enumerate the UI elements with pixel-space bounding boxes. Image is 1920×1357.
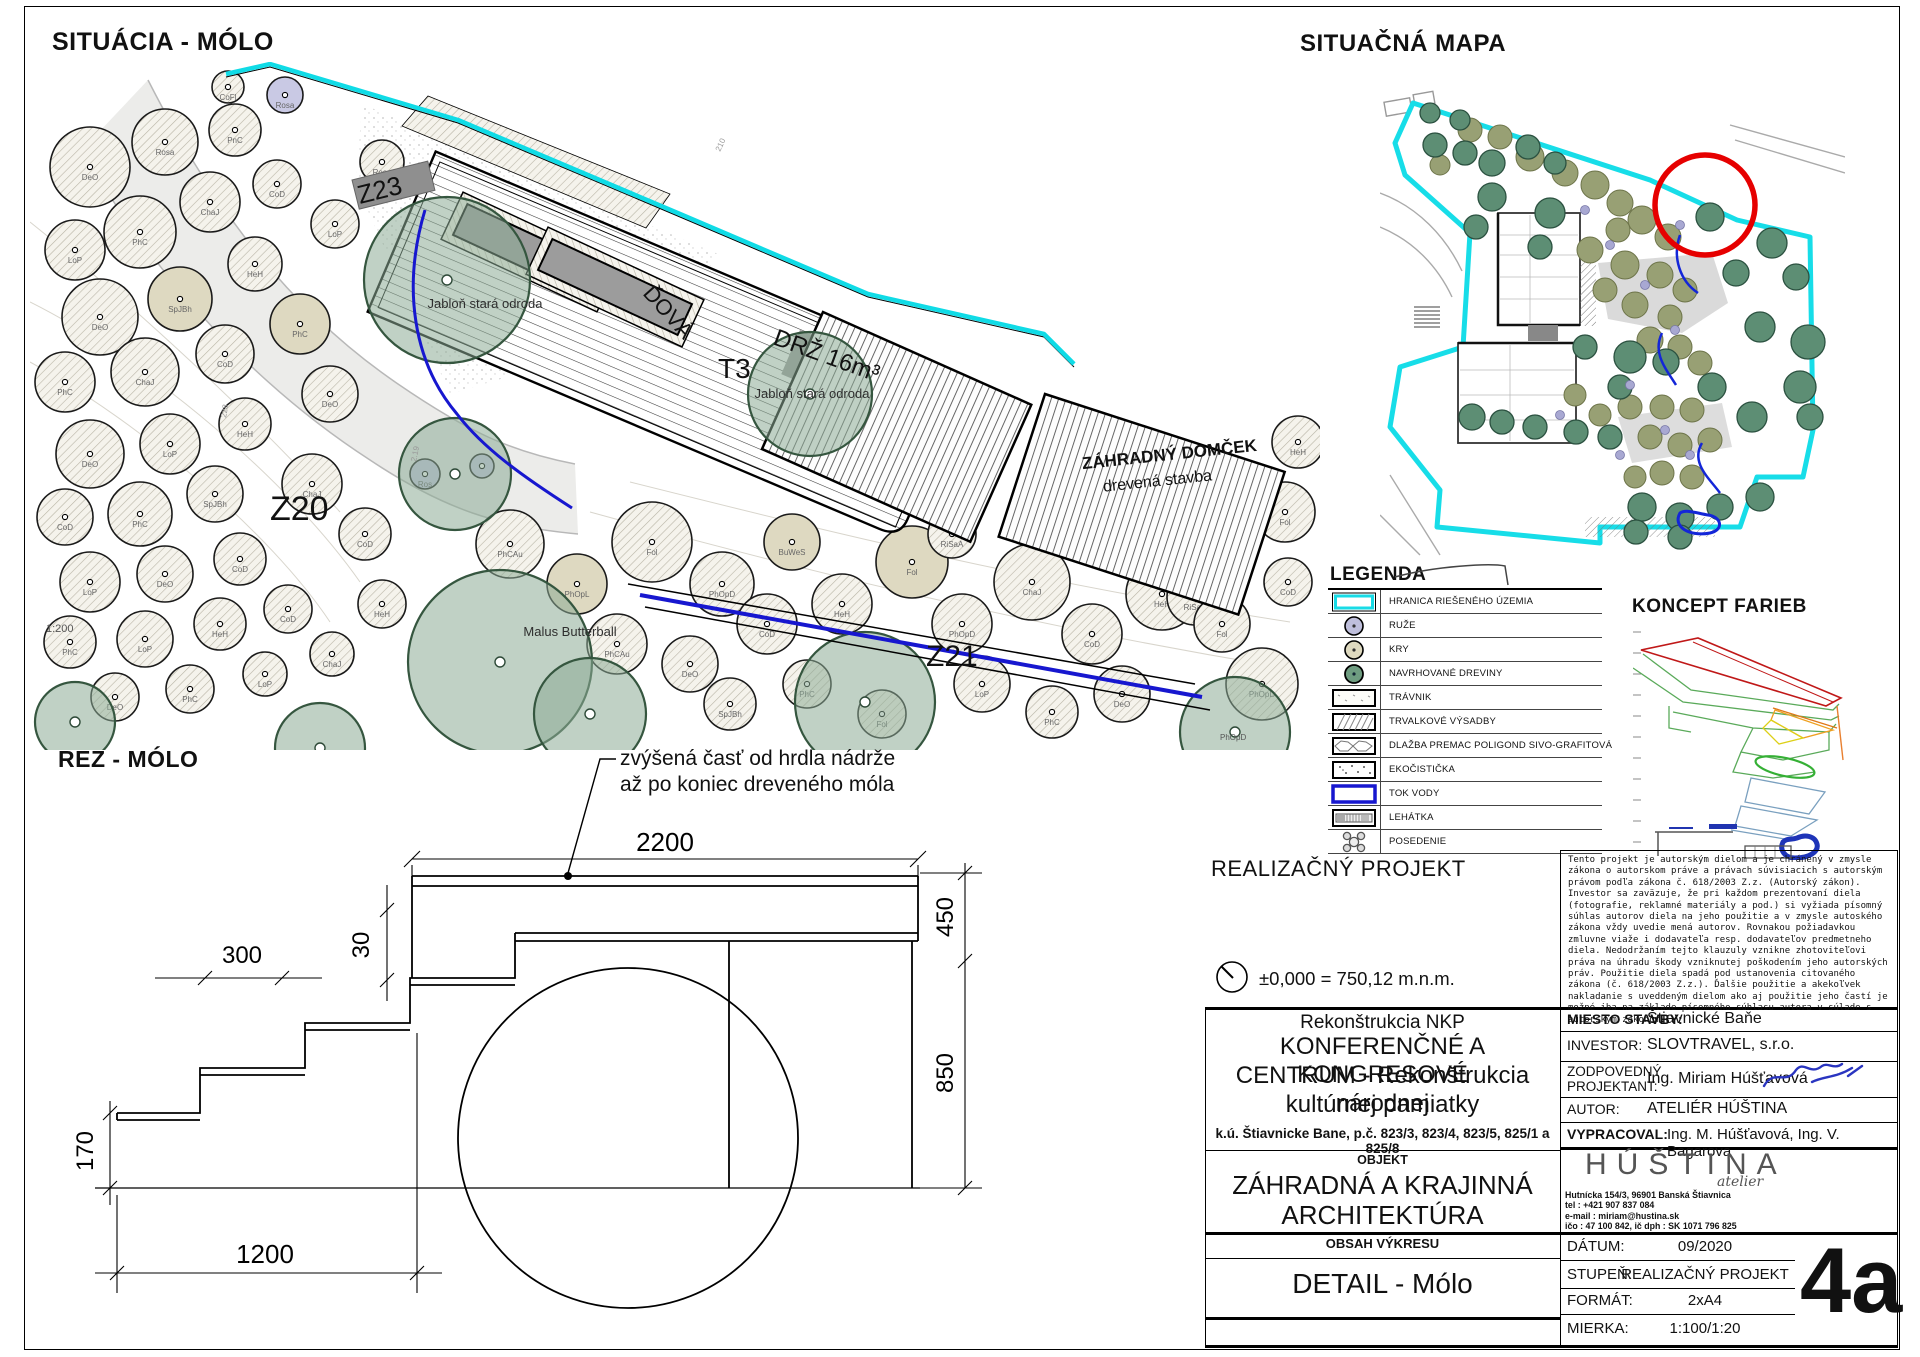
situation-map [1380,85,1845,563]
boundary-swatch [1328,590,1381,613]
map-tree [1598,425,1622,449]
meta-value-stupen: REALIZAČNÝ PROJEKT [1620,1266,1790,1283]
plan-tree: DeO [56,420,124,488]
plan-tree: PhC [1026,686,1078,738]
svg-text:PhOpD: PhOpD [709,590,735,599]
svg-text:PhC: PhC [292,330,308,339]
map-tree [1490,410,1514,434]
map-rose-dot [1641,281,1650,290]
plan-tree: LoP [117,611,173,667]
meta-value-datum: 09/2020 [1620,1238,1790,1255]
map-tree [1784,371,1816,403]
map-tree [1746,483,1774,511]
svg-text:PhC: PhC [132,520,148,529]
meta-value-mierka: 1:100/1:20 [1620,1320,1790,1337]
svg-text:LoP: LoP [83,588,97,597]
map-rose-dot [1686,451,1695,460]
map-rose-dot [1671,326,1680,335]
map-tree [1479,150,1505,176]
plan-tree: CoD [737,594,797,654]
map-tree [1668,525,1692,549]
meta-value-format: 2xA4 [1620,1292,1790,1309]
map-shrub [1680,398,1704,422]
annotation-leader [568,759,616,873]
plan-tree: DeO [302,366,358,422]
plan-tree: CoD [214,533,266,585]
svg-text:Fol: Fol [906,568,917,577]
map-shrub [1611,251,1639,279]
objekt-header: OBJEKT [1205,1153,1560,1167]
map-shrub [1622,292,1648,318]
logo-atelier: atelier [1717,1174,1763,1190]
title-koncept: KONCEPT FARIEB [1632,596,1807,618]
map-tree [1737,402,1767,432]
svg-text:300: 300 [222,942,262,969]
svg-text:PhC: PhC [1044,718,1060,727]
map-shrub [1606,218,1630,242]
site-plan-drawing: DeORosaPnCPhCLoPChaJCoDDeOSpJBhHeHPhCCha… [30,62,1320,750]
svg-text:CoD: CoD [280,615,296,624]
map-tree [1523,415,1547,439]
plan-tree: CoD [196,325,254,383]
svg-text:SpJBh: SpJBh [718,710,742,719]
plan-tree: ChaJ [180,172,240,232]
map-tree [1453,141,1477,165]
map-tree [1544,152,1566,174]
plan-tree: CoD [1062,604,1122,664]
plan-tree: SpJBh [704,678,756,730]
project-name-1: Rekonštrukcia NKP [1205,1012,1560,1034]
legend: HRANICA RIEŠENÉHO ÚZEMIARUŽEKRYNAVRHOVAN… [1328,588,1602,854]
obsah-header: OBSAH VÝKRESU [1205,1236,1560,1251]
svg-text:Rosa: Rosa [276,101,295,110]
legend-row: TRVALKOVÉ VÝSADBY [1328,710,1602,734]
map-rose-dot [1606,241,1615,250]
svg-text:CoD: CoD [232,565,248,574]
map-shrub [1650,461,1674,485]
plan-tree: CoD [37,489,93,545]
map-tree [1516,135,1540,159]
svg-text:30: 30 [348,932,375,959]
plan-tree: PhC [104,196,176,268]
perennial-swatch [1328,710,1381,733]
plan-tree: Rosa [267,77,303,113]
svg-text:HeH: HeH [212,630,228,639]
row-value-autor: ATELIÉR HÚŠTINA [1647,1100,1787,1118]
map-shrub [1688,351,1712,375]
map-tree [1573,335,1597,359]
map-rose-dot [1556,411,1565,420]
section-dim-labels: 2200 450 850 300 30 170 1200 [72,827,959,1269]
plan-tree: DeO [50,127,130,207]
map-tree [1696,203,1724,231]
svg-text:LoP: LoP [975,690,989,699]
svg-text:Fol: Fol [1279,518,1290,527]
logo-address: Hutnícka 154/3, 96901 Banská Štiavnica t… [1565,1190,1737,1231]
plan-tree: Fol [612,502,692,582]
map-shrub [1430,155,1450,175]
map-tree [1614,341,1646,373]
plan-tree: PhC [166,665,214,713]
plan-tree: PhC [270,294,330,354]
svg-text:LoP: LoP [138,645,152,654]
svg-text:HeH: HeH [237,430,253,439]
svg-text:HeH: HeH [1290,448,1306,457]
svg-text:170: 170 [72,1131,99,1171]
plan-tree: CoD [253,160,301,208]
section-annotation-1: zvýšená časť od hrdla nádrže [620,747,895,770]
legend-row: TOK VODY [1328,782,1602,806]
svg-text:CoD: CoD [57,523,73,532]
row-label-investor: INVESTOR: [1567,1037,1642,1053]
svg-text:CoD: CoD [759,630,775,639]
plan-tree: PhC [108,482,172,546]
svg-text:PhOpD: PhOpD [949,630,975,639]
plan-tree: HeH [358,580,406,628]
legend-row: DLAŽBA PREMAC POLIGOND SIVO-GRAFITOVÁ [1328,734,1602,758]
legend-label: RUŽE [1381,620,1416,631]
title-situacia: SITUÁCIA - MÓLO [52,28,274,57]
row-value-investor: SLOVTRAVEL, s.r.o. [1647,1036,1794,1054]
plan-label: Z20 [270,490,329,528]
svg-text:BuWeS: BuWeS [779,548,806,557]
plan-label: Z21 [926,640,978,673]
legend-row: LEHÁTKA [1328,806,1602,830]
svg-text:Fol: Fol [646,548,657,557]
copyright-text: Tento projekt je autorským dielom a je c… [1561,851,1898,1007]
svg-text:RiSaA: RiSaA [941,540,964,549]
tank-circle [458,968,798,1308]
svg-text:PhC: PhC [132,238,148,247]
lounger-swatch [1328,806,1381,829]
svg-text:CoD: CoD [357,540,373,549]
svg-text:LoP: LoP [68,256,82,265]
map-shrub [1647,262,1673,288]
plan-tree: Rosa [132,109,198,175]
svg-text:DeO: DeO [92,323,108,332]
map-shrub [1628,206,1656,234]
svg-text:DeO: DeO [82,460,98,469]
map-shrub [1624,466,1646,488]
svg-text:PhC: PhC [57,388,73,397]
plan-tree: SpJBh [187,466,243,522]
svg-text:PhC: PhC [182,695,198,704]
project-name-4: kultúrnej pamiatky [1205,1091,1560,1119]
svg-text:HeH: HeH [247,270,263,279]
map-tree [1797,404,1823,430]
legend-label: NAVRHOVANÉ DREVINY [1381,668,1503,679]
svg-text:DeO: DeO [322,400,338,409]
plan-tree: LoP [243,652,287,696]
svg-text:DeO: DeO [82,173,98,182]
signature [1760,1060,1875,1096]
map-tree [1464,215,1488,239]
plan-tree: HeH [1272,416,1320,468]
plan-tree: DeO [137,546,193,602]
svg-text:450: 450 [932,897,959,937]
svg-text:LoP: LoP [258,680,272,689]
legend-label: LEHÁTKA [1381,812,1434,823]
row-label-autor: AUTOR: [1567,1101,1620,1117]
svg-text:PhC: PhC [62,648,78,657]
map-tree [1564,420,1588,444]
map-rose-dot [1616,451,1625,460]
map-shrub [1607,190,1633,216]
plan-tree: DeO [662,636,718,692]
plan-tree: ChaJ [310,632,354,676]
koncept-farieb-sketch [1633,620,1903,860]
svg-text:PhCAu: PhCAu [604,650,629,659]
plan-tree: LoP [45,220,105,280]
map-tree [1624,520,1648,544]
stage-title: REALIZAČNÝ PROJEKT [1211,856,1466,882]
plan-tree: LoP [311,200,359,248]
plan-label: PhOpD [1220,733,1246,742]
svg-text:CoFl: CoFl [220,93,237,102]
svg-text:HeH: HeH [374,610,390,619]
map-shrub [1658,305,1682,329]
sketch-ticks [1633,632,1641,842]
svg-text:ChaJ: ChaJ [136,378,155,387]
legend-label: TOK VODY [1381,788,1440,799]
svg-text:850: 850 [932,1053,959,1093]
map-shrub [1638,425,1662,449]
plan-tree: PhC [35,352,95,412]
rose-swatch [1328,614,1381,637]
svg-text:2200: 2200 [636,827,694,857]
parcel-info: k.ú. Štiavnicke Bane, p.č. 823/3, 823/4,… [1205,1126,1560,1156]
shrub-swatch [1328,638,1381,661]
plan-tree: ChaJ [111,338,179,406]
legend-label: DLAŽBA PREMAC POLIGOND SIVO-GRAFITOVÁ [1381,740,1612,751]
objekt-line-1: ZÁHRADNÁ A KRAJINNÁ [1205,1170,1560,1201]
legend-label: KRY [1381,644,1409,655]
svg-text:CoD: CoD [217,360,233,369]
title-rez: REZ - MÓLO [58,746,198,773]
map-tree [1791,325,1825,359]
svg-text:1200: 1200 [236,1239,294,1269]
map-shrub [1680,465,1704,489]
tree-swatch [1328,662,1381,685]
map-tree [1423,133,1447,157]
plan-label: T3 [718,353,751,384]
legend-label: POSEDENIE [1381,836,1446,847]
section-drawing: zvýšená časť od hrdla nádrže až po konie… [60,733,1040,1357]
map-tree [1783,264,1809,290]
svg-text:ChaJ: ChaJ [323,660,342,669]
title-situacna-mapa: SITUAČNÁ MAPA [1300,30,1506,58]
plan-tree: PnC [209,104,261,156]
svg-text:CoD: CoD [1280,588,1296,597]
level-mark-icon [1213,958,1251,996]
svg-text:DeO: DeO [1114,700,1130,709]
svg-text:LoP: LoP [328,230,342,239]
map-tree [1698,373,1726,401]
legend-row: RUŽE [1328,614,1602,638]
legend-row: EKOČISTIČKA [1328,758,1602,782]
legend-row: TRÁVNIK [1328,686,1602,710]
map-shrub [1593,278,1617,302]
map-tree [1535,198,1565,228]
svg-text:SpJBh: SpJBh [168,305,192,314]
svg-text:LoP: LoP [163,450,177,459]
legend-label: TRÁVNIK [1381,692,1432,703]
map-shrub [1650,395,1674,419]
legend-row: KRY [1328,638,1602,662]
legend-leader-line [1395,558,1525,590]
map-rose-dot [1626,381,1635,390]
svg-text:Rosa: Rosa [156,148,175,157]
paving-swatch [1328,734,1381,757]
plan-tree: HeH [194,598,246,650]
section-dimensions [95,851,982,1293]
map-tree [1528,235,1552,259]
svg-text:Malus Butterball: Malus Butterball [523,624,616,639]
svg-text:DeO: DeO [682,670,698,679]
eco-swatch [1328,758,1381,781]
map-rose-dot [1581,206,1590,215]
legend-row: HRANICA RIEŠENÉHO ÚZEMIA [1328,590,1602,614]
sketch-shapes [1633,638,1843,858]
plan-tree: CoD [1264,558,1312,606]
plan-tree: SpJBh [148,267,212,331]
svg-text:Jabloň stará odroda: Jabloň stará odroda [428,296,544,311]
plan-tree: LoP [60,552,120,612]
title-block: REALIZAČNÝ PROJEKT ±0,000 = 750,12 m.n.m… [1205,850,1898,1347]
plan-tree: LoP [140,414,200,474]
drawing-sheet: SITUÁCIA - MÓLO SITUAČNÁ MAPA REZ - MÓLO… [0,0,1920,1357]
map-shrub [1564,384,1586,406]
map-shrub [1581,171,1609,199]
objekt-line-2: ARCHITEKTÚRA [1205,1200,1560,1231]
svg-text:SpJBh: SpJBh [203,500,227,509]
legend-row: NAVRHOVANÉ DREVINY [1328,662,1602,686]
map-tree [1450,110,1470,130]
drawing-title: DETAIL - Mólo [1205,1268,1560,1300]
svg-text:DeO: DeO [157,580,173,589]
svg-text:Fol: Fol [1216,630,1227,639]
legend-label: EKOČISTIČKA [1381,764,1455,775]
section-annotation-2: až po koniec dreveného móla [620,773,895,796]
svg-text:CoD: CoD [1084,640,1100,649]
water-swatch [1328,782,1381,805]
svg-text:Jabloň stará odroda: Jabloň stará odroda [755,386,871,401]
row-label-vypracoval: VYPRACOVAL: [1567,1126,1668,1142]
level-value: ±0,000 = 750,12 m.n.m. [1259,968,1455,990]
svg-text:ChaJ: ChaJ [1023,588,1042,597]
plan-label: 210 [714,136,728,152]
map-tree [1478,183,1506,211]
lawn-swatch [1328,686,1381,709]
legend-label: TRVALKOVÉ VÝSADBY [1381,716,1496,727]
map-rose-dot [1661,426,1670,435]
meta-label-datum: DÁTUM: [1567,1238,1625,1255]
map-tree [1459,404,1485,430]
plan-tree: HeH [228,237,282,291]
legend-label: HRANICA RIEŠENÉHO ÚZEMIA [1381,596,1533,607]
map-tree [1628,493,1656,521]
tree-canopy [399,418,511,530]
map-tree [1420,103,1440,123]
map-shrub [1589,404,1611,426]
map-tree [1757,228,1787,258]
svg-text:CoD: CoD [269,190,285,199]
map-shrub [1577,237,1603,263]
plan-tree: CoD [264,585,312,633]
plan-tree: BuWeS [764,514,820,570]
map-tree [1723,260,1749,286]
plan-tree: CoD [339,508,391,560]
svg-text:ChaJ: ChaJ [201,208,220,217]
svg-text:HeH: HeH [834,610,850,619]
map-rose-dot [1676,221,1685,230]
svg-text:PhCAu: PhCAu [497,550,522,559]
plan-label: 1:200 [46,623,74,635]
svg-text:PnC: PnC [227,136,243,145]
row-value-miesto: Štiavnické Baňe [1647,1010,1762,1028]
sheet-number: 4a [1800,1235,1895,1327]
map-shrub [1698,428,1722,452]
svg-text:PhOpL: PhOpL [565,590,590,599]
map-tree [1745,312,1775,342]
map-shrub [1488,125,1512,149]
